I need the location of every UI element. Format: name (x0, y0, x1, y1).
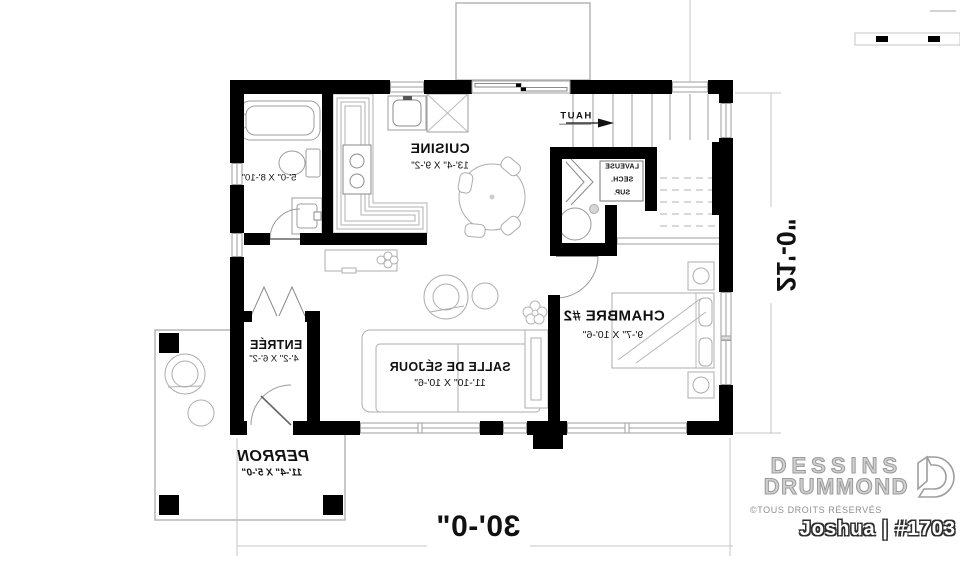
bedroom-door (556, 256, 598, 298)
laundry-line3: SUP. (605, 187, 639, 200)
overall-width-dimension: 30'-0" (436, 510, 520, 544)
brand-name-line2: DRUMMOND (764, 476, 909, 498)
tv-console (525, 330, 548, 408)
laundry-line1: LAVEUSE (605, 162, 639, 175)
neighbor-railing (855, 33, 960, 45)
porch-chair (165, 354, 205, 394)
room-dims-sejour: 11'-10" X 10'-6" (414, 378, 485, 390)
patio-sliding-door (472, 81, 570, 93)
kitchen-sink (388, 96, 426, 130)
rear-deck (456, 3, 590, 80)
room-label-entree: ENTRÉE (250, 338, 303, 352)
stairs-label: HAUT (559, 112, 591, 125)
bathtub (238, 101, 320, 140)
brand-name-line1: DESSINS (764, 456, 909, 477)
room-dims-chambre2: 9'-7" X 10'-6" (583, 330, 644, 342)
drummond-logo-icon (912, 451, 956, 503)
room-label-perron: PERRON (237, 448, 309, 466)
room-dims-entree: 4'-2" X 6'-2" (249, 355, 298, 366)
stove (343, 145, 371, 194)
refrigerator (427, 94, 468, 132)
water-heater (559, 205, 599, 241)
console-table (325, 250, 398, 273)
stair-half-wall (617, 238, 727, 244)
laundry-label: LAVEUSE SECH. SUP. (605, 162, 639, 201)
plant (523, 301, 547, 324)
front-door (251, 385, 291, 425)
floor-plan-sheet: CUISINE 13'-4" X 9'-2" 5'-0" X 8'-10" HA… (0, 0, 960, 569)
vanity-sink (292, 198, 322, 234)
staircase (573, 94, 708, 147)
plan-model-number: Joshua | #1703 (744, 518, 956, 541)
utility-bifold-doors (566, 159, 593, 205)
room-label-sejour: SALLE DE SÉJOUR (389, 360, 510, 374)
overall-depth-dimension: 21'-0" (771, 218, 801, 291)
branding-block: DESSINS DRUMMOND ©TOUS DROITS RÉSERVÉS J… (744, 451, 956, 541)
brand-copyright: ©TOUS DROITS RÉSERVÉS (744, 505, 956, 515)
room-label-cuisine: CUISINE (410, 141, 470, 157)
porch-table (188, 400, 214, 426)
entry-closet-doors (251, 287, 305, 316)
room-dims-perron: 11'-4" X 5'-0" (242, 467, 302, 478)
laundry-line2: SECH. (605, 175, 639, 188)
room-label-chambre2: CHAMBRE #2 (563, 309, 665, 326)
room-dims-bathroom: 5'-0" X 8'-10" (242, 174, 297, 185)
ottoman (472, 283, 498, 309)
armchair (424, 275, 468, 319)
room-dims-cuisine: 13'-4" X 9'-2" (411, 160, 469, 171)
